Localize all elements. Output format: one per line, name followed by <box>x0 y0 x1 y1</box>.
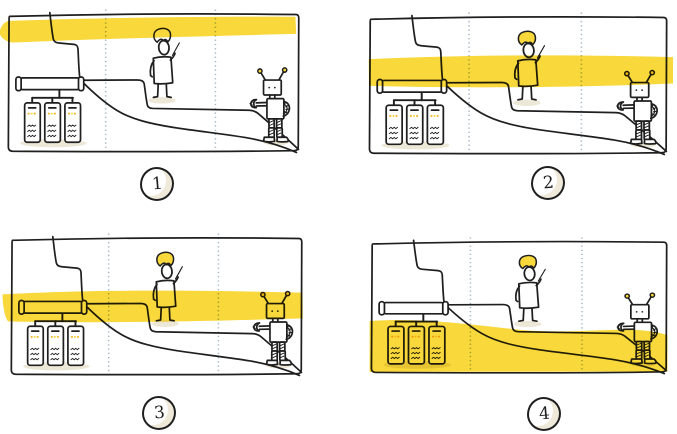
scene-drawing-1 <box>2 8 304 156</box>
scene-drawing-3 <box>5 232 307 379</box>
panel-3 <box>5 232 307 379</box>
highlight-band-bottom <box>370 320 668 372</box>
panel-number-badge-4: 4 <box>527 397 561 431</box>
panel-number: 1 <box>151 174 164 195</box>
panel-1 <box>2 8 304 156</box>
panel-number-badge-1: 1 <box>140 167 174 201</box>
highlight-band-lower-middle <box>2 291 302 323</box>
panel-number-badge-3: 3 <box>142 396 176 430</box>
panel-number: 3 <box>153 403 166 424</box>
panel-number-badge-2: 2 <box>531 166 565 200</box>
panel-number: 4 <box>538 404 551 425</box>
highlight-band-upper-middle <box>369 55 673 87</box>
panel-4 <box>365 236 672 377</box>
sketch-canvas: 1 2 3 4 <box>0 0 677 434</box>
panel-2 <box>363 11 672 158</box>
highlight-band-top <box>0 17 296 43</box>
scene-drawing-4 <box>365 236 672 377</box>
scene-drawing-2 <box>363 11 672 158</box>
panel-number: 2 <box>542 173 555 194</box>
